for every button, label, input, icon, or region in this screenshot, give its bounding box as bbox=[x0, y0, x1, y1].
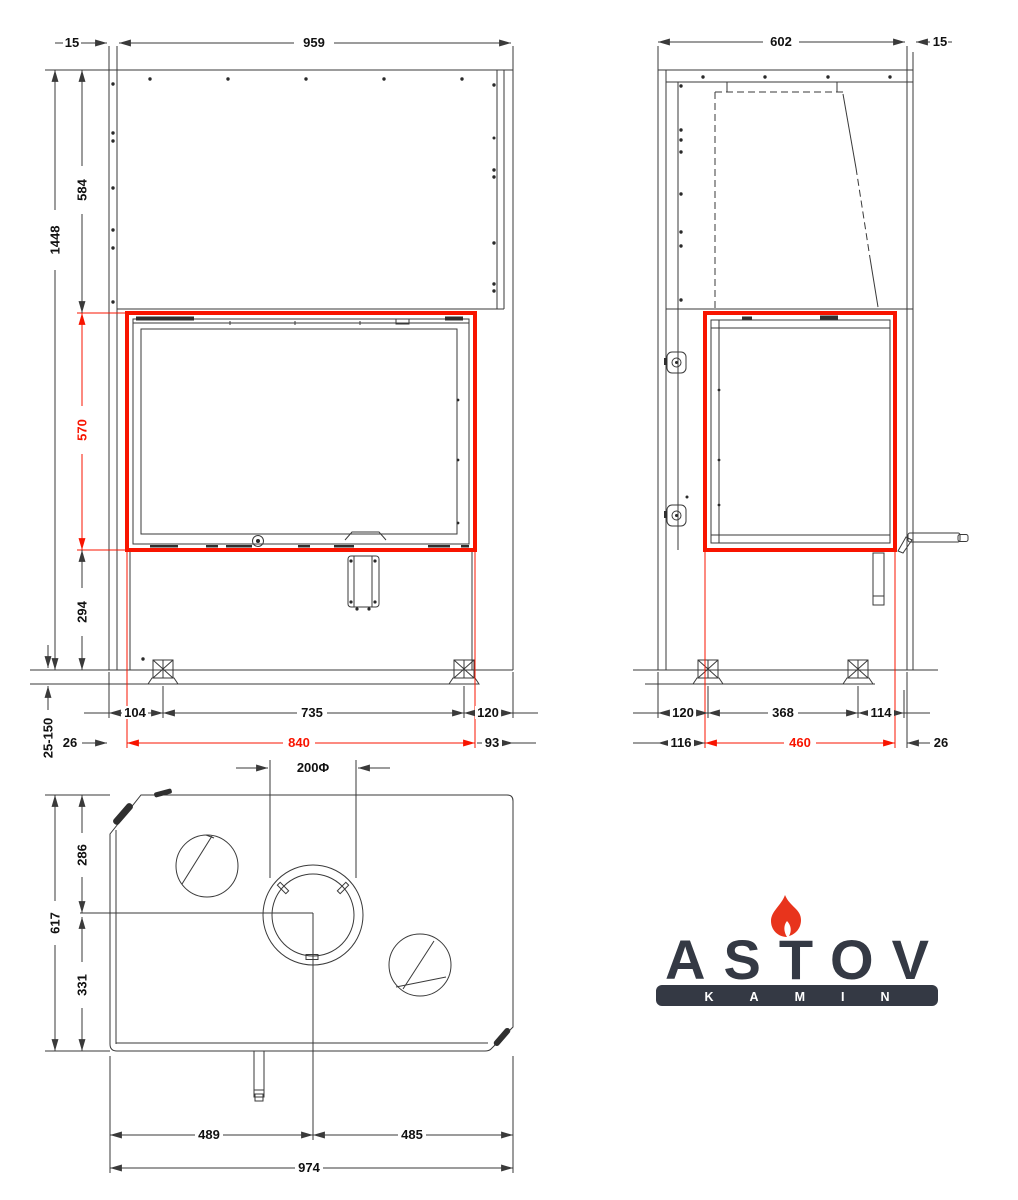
dim-front-total-height: 1448 bbox=[48, 226, 63, 255]
dim-front-wall-offset: 15 bbox=[65, 35, 79, 50]
brand-subtitle: KAMIN bbox=[705, 990, 926, 1004]
dim-top-total-width: 974 bbox=[298, 1160, 320, 1175]
hinge-bottom bbox=[664, 505, 686, 526]
dim-front-leg-spacing: 735 bbox=[301, 705, 323, 720]
dim-top-flue-to-right: 485 bbox=[401, 1127, 423, 1142]
door-handle bbox=[898, 533, 968, 553]
dim-side-leg-spacing: 368 bbox=[772, 705, 794, 720]
dim-top-flue-to-front: 331 bbox=[75, 974, 90, 996]
damper-rod bbox=[873, 553, 884, 605]
dim-side-glass-depth: 460 bbox=[789, 735, 811, 750]
brand-logo: ASTOV KAMIN bbox=[656, 895, 947, 1006]
adjustable-foot-left bbox=[148, 660, 178, 684]
front-glass-door bbox=[133, 317, 469, 548]
dim-front-left-margin: 26 bbox=[63, 735, 77, 750]
dim-top-total-depth: 617 bbox=[48, 912, 63, 934]
dim-side-back-margin: 116 bbox=[671, 735, 692, 750]
dim-front-body-width: 959 bbox=[303, 35, 325, 50]
dim-top-flue-diameter: 200Φ bbox=[297, 760, 330, 775]
front-view-dimensions: 15 959 1448 584 570 294 25-150 bbox=[41, 35, 539, 758]
fireplace-technical-drawing: 15 959 1448 584 570 294 25-150 bbox=[0, 0, 1018, 1200]
dim-front-leg-range: 25-150 bbox=[41, 718, 56, 758]
dim-front-upper-height: 584 bbox=[75, 178, 90, 200]
side-glass-door bbox=[711, 316, 890, 544]
air-opening-right bbox=[389, 934, 451, 996]
front-glass-highlight bbox=[127, 313, 475, 550]
flue-baffle bbox=[715, 82, 878, 309]
air-opening-left bbox=[176, 835, 238, 897]
side-view: 602 15 120 368 114 116 bbox=[633, 34, 968, 750]
dim-front-base-height: 294 bbox=[75, 600, 90, 622]
screw-dots bbox=[111, 77, 495, 303]
adjustable-foot-left bbox=[693, 660, 723, 684]
front-base bbox=[30, 550, 513, 684]
adjustable-foot-right bbox=[843, 660, 873, 684]
dim-front-leg-to-edge: 120 bbox=[477, 705, 499, 720]
dim-front-glass-height: 570 bbox=[75, 419, 90, 441]
side-glass-highlight bbox=[705, 313, 895, 550]
top-view: 200Φ 286 331 617 489 485 974 bbox=[45, 760, 513, 1175]
dim-front-edge-to-leg: 104 bbox=[124, 705, 146, 720]
dim-side-front-margin: 26 bbox=[934, 735, 948, 750]
dim-top-back-to-flue: 286 bbox=[75, 844, 90, 866]
technical-drawing-page: 15 959 1448 584 570 294 25-150 bbox=[0, 0, 1018, 1200]
dim-front-glass-width: 840 bbox=[288, 735, 310, 750]
dim-top-left-to-flue: 489 bbox=[198, 1127, 220, 1142]
brand-name: ASTOV bbox=[665, 928, 947, 991]
front-view: 15 959 1448 584 570 294 25-150 bbox=[30, 35, 538, 758]
door-latch bbox=[345, 532, 386, 540]
top-view-body bbox=[80, 788, 513, 1140]
side-base bbox=[633, 553, 938, 684]
control-box bbox=[348, 556, 379, 611]
front-view-body bbox=[30, 46, 513, 684]
side-view-body bbox=[633, 46, 968, 684]
dim-side-wall-offset: 15 bbox=[933, 34, 947, 49]
dim-front-right-margin: 93 bbox=[485, 735, 499, 750]
top-handle bbox=[254, 1051, 264, 1101]
dim-side-leg-to-front: 114 bbox=[871, 705, 893, 720]
hinge-top bbox=[664, 352, 686, 373]
dim-side-body-depth: 602 bbox=[770, 34, 792, 49]
dim-side-back-to-leg: 120 bbox=[672, 705, 694, 720]
